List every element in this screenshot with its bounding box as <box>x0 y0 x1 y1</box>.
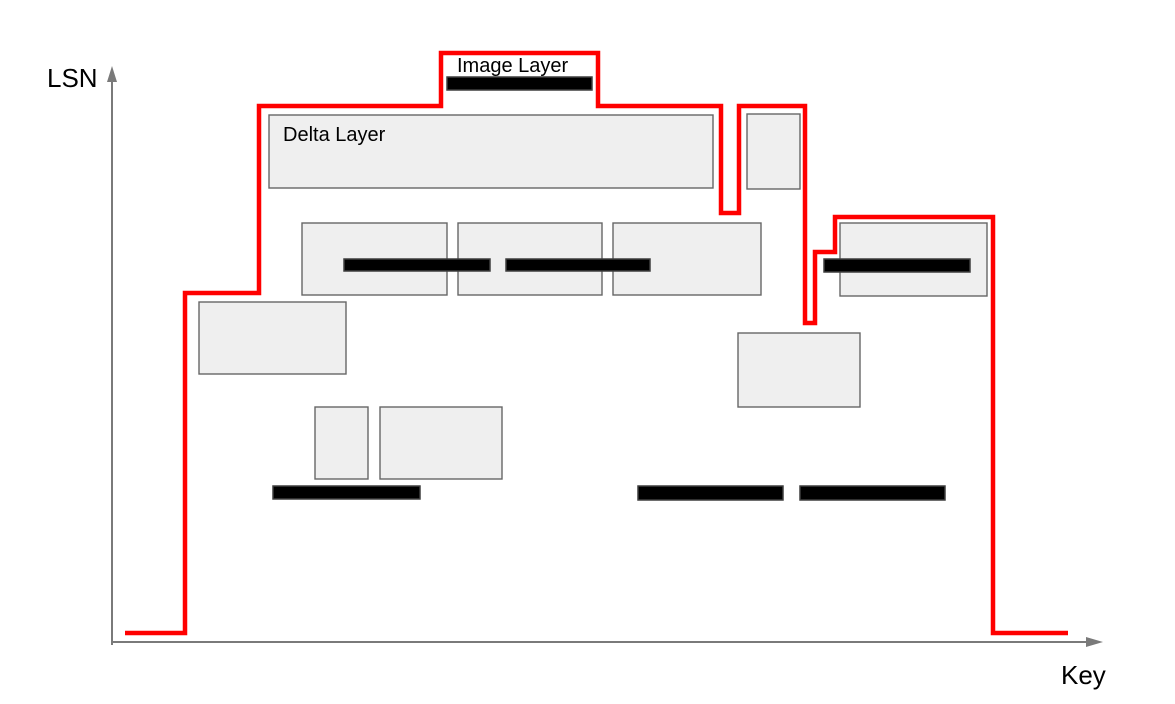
delta-layer-label: Delta Layer <box>283 124 386 146</box>
x-axis-arrowhead-icon <box>1086 637 1103 647</box>
image-layer-bar-bottom-left <box>273 486 420 499</box>
delta-layer-box-top-small <box>747 114 800 189</box>
delta-layer-box-left <box>199 302 346 374</box>
image-layer-bar-bottom-center <box>638 486 783 500</box>
image-layer-bar-mid-left <box>344 259 490 271</box>
image-layer-label: Image Layer <box>457 55 569 77</box>
y-axis-arrowhead-icon <box>107 66 117 82</box>
delta-layer-box-small-a <box>315 407 368 479</box>
image-layer-bar-top <box>447 77 592 90</box>
layer-map-diagram: LSN Key Image Layer Delta Layer <box>0 0 1175 704</box>
image-layer-bar-bottom-right <box>800 486 945 500</box>
delta-layer-box-small-b <box>380 407 502 479</box>
delta-layer-boxes-group <box>199 114 987 479</box>
image-layer-bar-mid-right <box>506 259 650 271</box>
delta-layer-box-bottom-center <box>738 333 860 407</box>
layer-map-canvas: LSN Key Image Layer Delta Layer <box>0 0 1175 704</box>
y-axis-label: LSN <box>47 63 98 93</box>
x-axis-label: Key <box>1061 660 1106 690</box>
image-layer-bar-right <box>824 259 970 272</box>
